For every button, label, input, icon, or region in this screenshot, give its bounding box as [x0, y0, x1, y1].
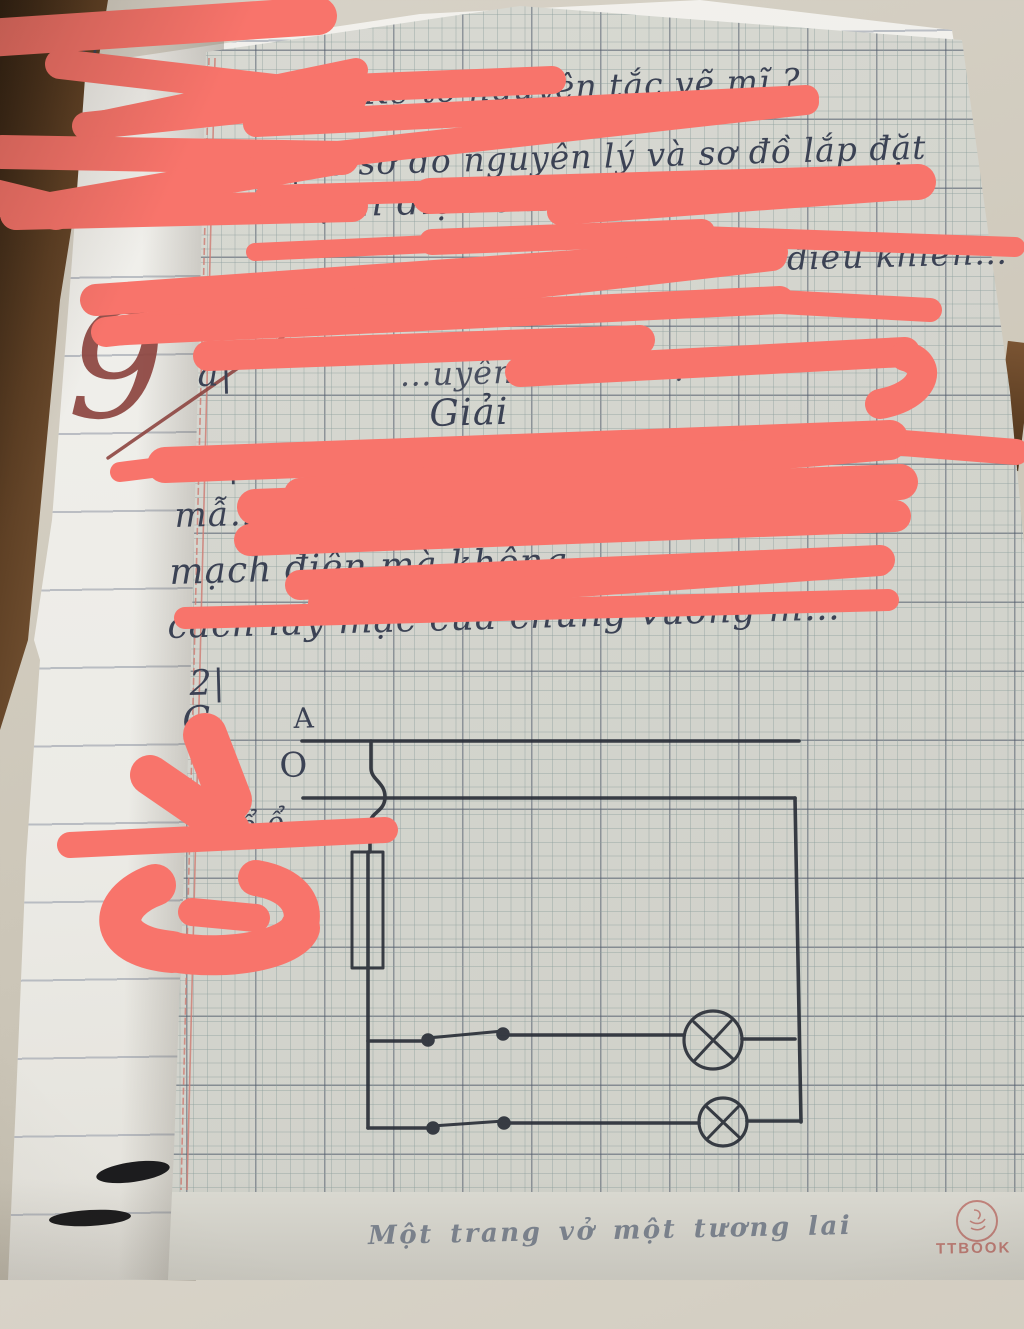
handwriting-solution-heading: Giải: [429, 390, 509, 435]
handwriting-question-3-fragment: … điều khiển…: [741, 233, 1009, 279]
circuit-label-neutral-O: O: [279, 745, 309, 786]
handwriting-item-a: a|: [197, 353, 234, 395]
ttbook-stamp-label: TTBOOK: [936, 1239, 1012, 1257]
handwriting-item-a-fragment-2: …ận trì: [639, 342, 767, 384]
handwriting-top-fragment: Nh: [61, 43, 110, 79]
grade-mark: 9: [66, 278, 167, 455]
handwriting-item-2: 2|: [189, 663, 226, 704]
handwriting-letter-fragment: G: [182, 699, 213, 741]
notebook-photo: { "handwriting": { "top_fragment": "Nh",…: [0, 0, 1024, 1280]
handwriting-item-a-fragment-1: …uyên…: [399, 352, 548, 394]
handwriting-solution-line-2: mẫ…: [174, 494, 265, 536]
handwriting-solution-line-1: 1|Kể tỏ…: [204, 441, 371, 486]
circuit-label-phase-A: A: [293, 701, 315, 735]
